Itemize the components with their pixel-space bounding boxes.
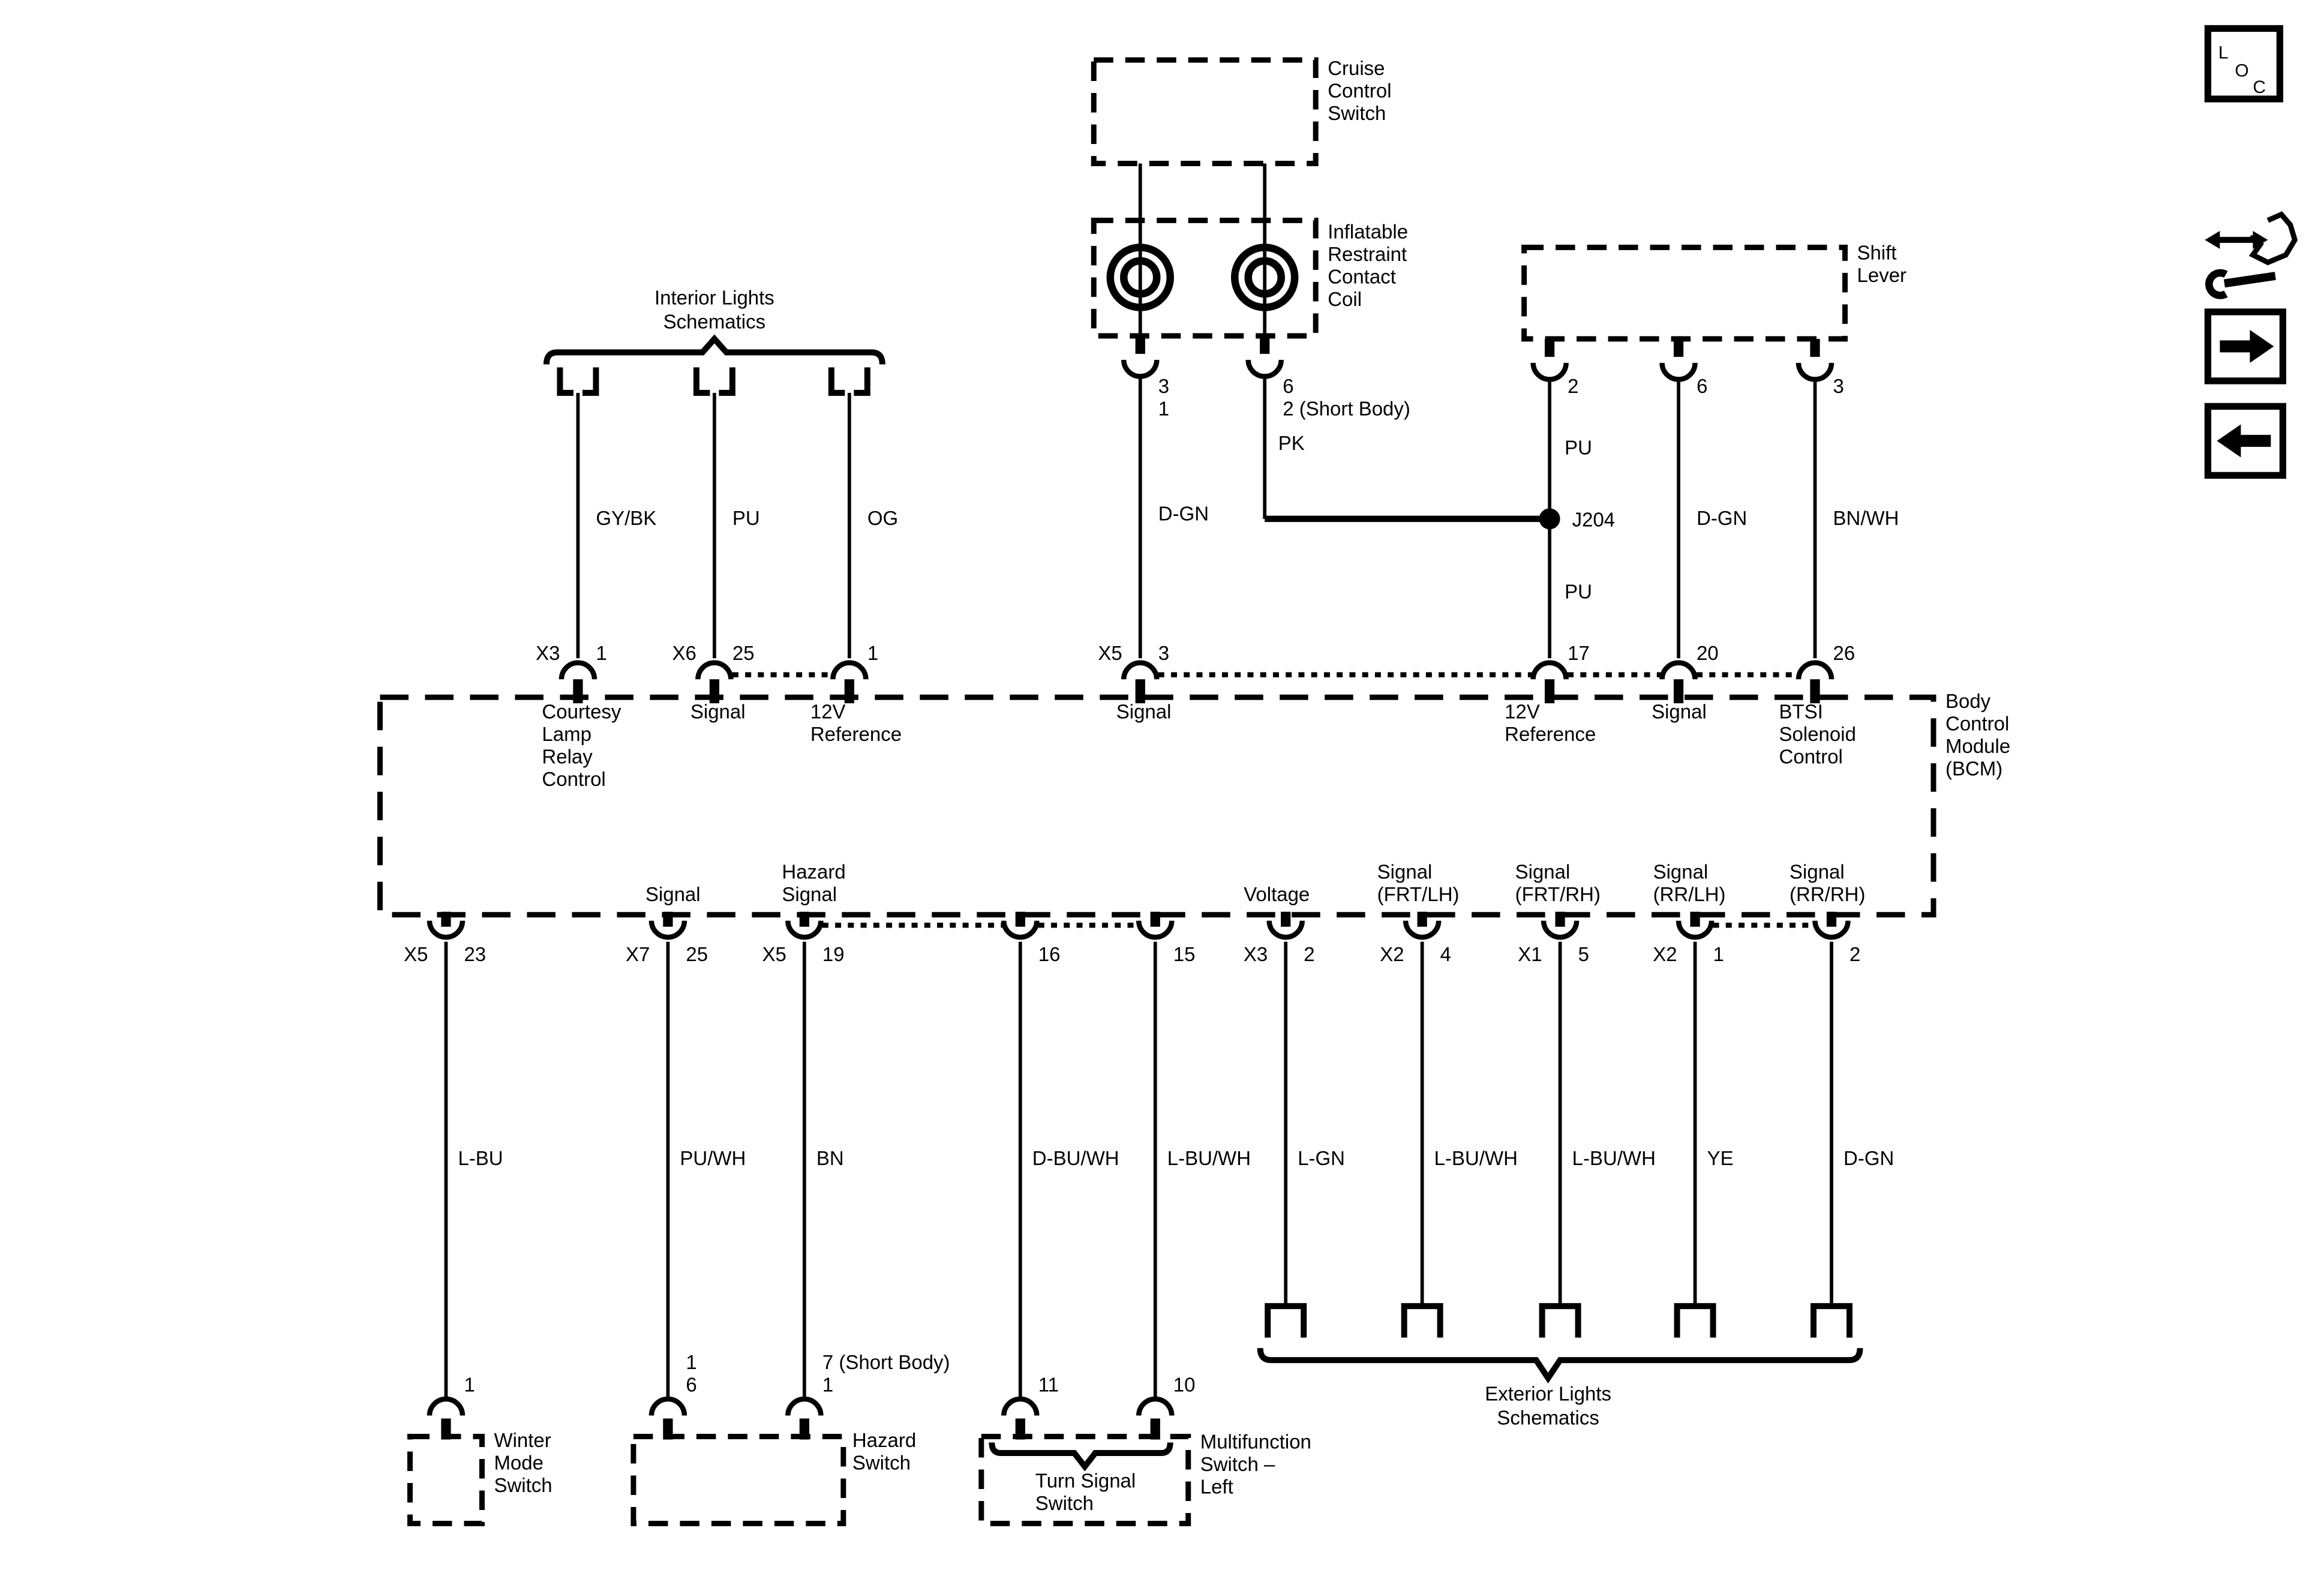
terminal-symbol bbox=[1813, 1306, 1849, 1337]
wires-bottom bbox=[446, 942, 1831, 1398]
bcm-label: Control bbox=[1945, 712, 2009, 734]
terminal-symbol bbox=[1404, 1306, 1440, 1337]
wire-color-label: L-BU bbox=[458, 1147, 503, 1169]
winter-mode-switch-box bbox=[410, 1437, 482, 1524]
pin-number: 1 bbox=[1713, 943, 1724, 965]
pin-function: Signal bbox=[1652, 700, 1707, 722]
pin-number: 2 bbox=[1849, 943, 1860, 965]
exterior-lights-terminals bbox=[1260, 1306, 1860, 1378]
pin-arc bbox=[1248, 360, 1281, 376]
winter-mode-label: Mode bbox=[494, 1452, 544, 1474]
interior-lights-connectors bbox=[547, 339, 882, 393]
wire-color-label: YE bbox=[1707, 1147, 1734, 1169]
pin-number: 1 bbox=[464, 1374, 475, 1396]
wire-color-label: L-GN bbox=[1298, 1147, 1345, 1169]
left-arrow-icon bbox=[2217, 424, 2271, 457]
exterior-lights-title: Schematics bbox=[1497, 1407, 1599, 1429]
wire-color-label: D-GN bbox=[1843, 1147, 1894, 1169]
interior-lights-title: Schematics bbox=[663, 310, 765, 332]
pin-number: 1 bbox=[596, 642, 606, 664]
pin-number: 6 bbox=[686, 1374, 696, 1396]
pin-number: 25 bbox=[732, 642, 755, 664]
hazard-switch-label: Switch bbox=[852, 1452, 911, 1474]
connector-id: X2 bbox=[1653, 943, 1677, 965]
pin-number: 5 bbox=[1578, 943, 1589, 965]
interior-lights-brace bbox=[547, 339, 882, 364]
shift-lever-label: Lever bbox=[1857, 264, 1907, 286]
pin-number: 1 bbox=[822, 1374, 833, 1396]
cruise-label: Control bbox=[1328, 79, 1391, 101]
pin-number: 3 bbox=[1158, 375, 1169, 397]
pin-number: 6 bbox=[1283, 375, 1293, 397]
contact-coil-symbols bbox=[1110, 247, 1295, 307]
pin-arc bbox=[1124, 360, 1157, 376]
wiring-diagram: Interior Lights Schematics bbox=[0, 0, 2324, 1573]
interior-lights-title: Interior Lights bbox=[654, 286, 774, 308]
exterior-lights-brace bbox=[1260, 1348, 1860, 1378]
exterior-lights-title: Exterior Lights bbox=[1485, 1383, 1611, 1405]
right-arrow-icon bbox=[2220, 330, 2274, 363]
wire-color-label: PU bbox=[732, 507, 760, 529]
pin-number: 1 bbox=[1158, 397, 1169, 419]
diagnostic-tools-icon[interactable] bbox=[2205, 214, 2295, 295]
pin-arc bbox=[1124, 663, 1157, 679]
connector-id: X5 bbox=[404, 943, 428, 965]
winter-mode-label: Winter bbox=[494, 1429, 551, 1451]
hazard-switch-label: Hazard bbox=[852, 1429, 916, 1451]
previous-page-button[interactable] bbox=[2208, 406, 2283, 475]
pin-number: 16 bbox=[1038, 943, 1061, 965]
pin-function: Relay bbox=[542, 745, 593, 767]
connector-symbol bbox=[831, 367, 867, 392]
connector-id: X5 bbox=[1098, 642, 1122, 664]
terminal-symbol bbox=[1677, 1306, 1713, 1337]
pin-function: 12V bbox=[810, 700, 846, 722]
wire-color-label: GY/BK bbox=[596, 507, 656, 529]
pin-function: Voltage bbox=[1244, 883, 1310, 905]
loc-button[interactable]: L O C bbox=[2208, 28, 2280, 98]
pin-function: Signal bbox=[1789, 861, 1845, 883]
wire-color-label: D-GN bbox=[1158, 502, 1209, 524]
pin-number: 1 bbox=[686, 1351, 696, 1373]
wire-color-label: OG bbox=[867, 507, 898, 529]
pin-function: Control bbox=[542, 768, 605, 790]
pin-number: 2 (Short Body) bbox=[1283, 397, 1410, 419]
wire-color-label: PU/WH bbox=[680, 1147, 746, 1169]
shift-lever-box bbox=[1524, 247, 1845, 338]
pin-function: Lamp bbox=[542, 723, 591, 745]
terminal-symbol bbox=[1268, 1306, 1304, 1337]
pin-arc bbox=[651, 1399, 684, 1415]
bcm-label: Body bbox=[1945, 690, 1991, 712]
loc-letter: O bbox=[2235, 61, 2248, 80]
coil-label: Coil bbox=[1328, 288, 1362, 310]
coil-box-pins bbox=[1124, 336, 1281, 376]
pin-number: 20 bbox=[1697, 642, 1719, 664]
connector-symbol bbox=[696, 367, 732, 392]
coil-label: Contact bbox=[1328, 265, 1396, 287]
pin-function: BTSI bbox=[1779, 700, 1823, 722]
multifunction-label: Left bbox=[1200, 1476, 1233, 1498]
pin-number: 15 bbox=[1173, 943, 1196, 965]
multifunction-label: Multifunction bbox=[1200, 1431, 1311, 1453]
connector-id: X1 bbox=[1518, 943, 1542, 965]
pin-function: 12V bbox=[1505, 700, 1540, 722]
coil-label: Restraint bbox=[1328, 243, 1407, 265]
pin-function: Control bbox=[1779, 745, 1843, 767]
wire-color-label: L-BU/WH bbox=[1572, 1147, 1656, 1169]
pin-function: (FRT/LH) bbox=[1377, 883, 1460, 905]
wire-color-label: L-BU/WH bbox=[1434, 1147, 1518, 1169]
pin-function: Reference bbox=[1505, 723, 1596, 745]
coil-label: Inflatable bbox=[1328, 220, 1408, 242]
turn-signal-label: Turn Signal bbox=[1035, 1470, 1136, 1492]
pin-number: 1 bbox=[867, 642, 878, 664]
connector-symbol bbox=[560, 367, 596, 392]
pin-number: 23 bbox=[464, 943, 486, 965]
pin-function: Courtesy bbox=[542, 700, 621, 722]
pin-arc bbox=[1533, 363, 1566, 379]
cruise-label: Cruise bbox=[1328, 57, 1385, 79]
bcm-label: (BCM) bbox=[1945, 757, 2002, 779]
pin-number: 25 bbox=[686, 943, 708, 965]
loc-letter: L bbox=[2218, 43, 2229, 62]
pin-number: 3 bbox=[1158, 642, 1169, 664]
connector-id: X6 bbox=[672, 642, 696, 664]
wire-color-label: L-BU/WH bbox=[1167, 1147, 1251, 1169]
pin-number: 11 bbox=[1038, 1374, 1059, 1396]
pin-function: Hazard bbox=[782, 861, 845, 883]
arrow-head-left bbox=[2205, 231, 2220, 249]
winter-mode-label: Switch bbox=[494, 1474, 552, 1496]
pin-function: Signal bbox=[1653, 861, 1709, 883]
turn-signal-brace bbox=[992, 1443, 1170, 1467]
pin-function: Signal bbox=[1377, 861, 1433, 883]
pin-number: 26 bbox=[1833, 642, 1855, 664]
loc-letter: C bbox=[2253, 77, 2266, 97]
pin-function: (RR/RH) bbox=[1789, 883, 1865, 905]
multifunction-label: Switch – bbox=[1200, 1453, 1275, 1475]
connector-id: X2 bbox=[1380, 943, 1404, 965]
connector-id: X5 bbox=[762, 943, 786, 965]
pin-function: Signal bbox=[1116, 700, 1172, 722]
pin-number: 6 bbox=[1697, 375, 1707, 397]
hazard-switch-box bbox=[633, 1437, 843, 1524]
pin-function: (FRT/RH) bbox=[1515, 883, 1601, 905]
terminal-symbol bbox=[1542, 1306, 1578, 1337]
cruise-label: Switch bbox=[1328, 102, 1386, 124]
pin-arc bbox=[698, 663, 731, 679]
pin-function: Signal bbox=[1515, 861, 1571, 883]
next-page-button[interactable] bbox=[2208, 312, 2283, 381]
pin-function: Signal bbox=[782, 883, 837, 905]
wiring-diagram-page: Interior Lights Schematics bbox=[0, 0, 2324, 1573]
pin-arc bbox=[1533, 663, 1566, 679]
pin-function: Solenoid bbox=[1779, 723, 1856, 745]
pin-arc bbox=[1798, 363, 1831, 379]
bcm-label: Module bbox=[1945, 735, 2010, 757]
shift-lever-label: Shift bbox=[1857, 241, 1897, 263]
pin-function: (RR/LH) bbox=[1653, 883, 1726, 905]
wire-color-label: PU bbox=[1565, 580, 1592, 602]
pin-arc bbox=[1798, 663, 1831, 679]
pin-function: Signal bbox=[645, 883, 701, 905]
wires-top bbox=[578, 163, 1815, 658]
junction-label: J204 bbox=[1572, 508, 1616, 530]
wrench-handle bbox=[2224, 276, 2275, 283]
wire-color-label: D-GN bbox=[1697, 507, 1747, 529]
pin-number: 7 (Short Body) bbox=[822, 1351, 950, 1373]
connector-id: X3 bbox=[1244, 943, 1268, 965]
connector-id: X7 bbox=[626, 943, 650, 965]
pin-number: 10 bbox=[1173, 1374, 1196, 1396]
wire-color-label: PK bbox=[1278, 432, 1305, 454]
pin-arc bbox=[1004, 1399, 1037, 1415]
shift-lever-pins bbox=[1533, 339, 1831, 379]
pin-number: 17 bbox=[1568, 642, 1590, 664]
pin-number: 2 bbox=[1568, 375, 1578, 397]
pin-arc bbox=[1662, 363, 1695, 379]
pin-arc bbox=[1139, 1399, 1172, 1415]
turn-signal-label: Switch bbox=[1035, 1492, 1094, 1514]
wire-color-label: BN bbox=[816, 1147, 844, 1169]
pin-number: 3 bbox=[1833, 375, 1844, 397]
pin-number: 4 bbox=[1440, 943, 1451, 965]
wire-color-label: BN/WH bbox=[1833, 507, 1899, 529]
pin-number: 19 bbox=[822, 943, 845, 965]
junction-dot-j204 bbox=[1539, 508, 1560, 529]
cruise-control-switch-box bbox=[1094, 60, 1316, 163]
pin-number: 2 bbox=[1304, 943, 1314, 965]
wire-color-label: D-BU/WH bbox=[1032, 1147, 1119, 1169]
pin-arc bbox=[788, 1399, 821, 1415]
pin-arc bbox=[562, 663, 594, 679]
pin-arc bbox=[430, 1399, 463, 1415]
pin-arc bbox=[833, 663, 866, 679]
wrench-jaw bbox=[2209, 273, 2226, 295]
pin-arc bbox=[1662, 663, 1695, 679]
wire-color-label: PU bbox=[1565, 436, 1592, 458]
pin-function: Reference bbox=[810, 723, 902, 745]
pin-function: Signal bbox=[690, 700, 746, 722]
connector-id: X3 bbox=[536, 642, 560, 664]
